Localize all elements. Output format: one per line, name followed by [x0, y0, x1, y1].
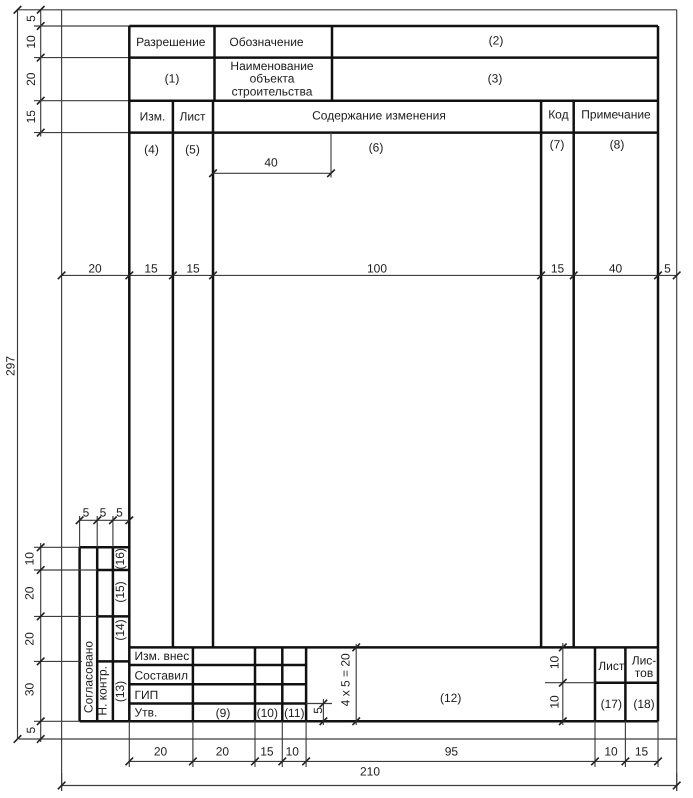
svg-text:(3): (3)	[488, 72, 503, 86]
svg-text:20: 20	[88, 261, 102, 275]
svg-text:строительства: строительства	[232, 85, 313, 99]
svg-text:10: 10	[23, 552, 37, 566]
svg-text:40: 40	[609, 261, 623, 275]
svg-text:15: 15	[144, 261, 158, 275]
svg-text:20: 20	[154, 745, 168, 759]
svg-text:(12): (12)	[440, 691, 461, 705]
svg-text:Изм.: Изм.	[140, 110, 166, 124]
svg-text:210: 210	[360, 765, 380, 779]
svg-text:(8): (8)	[610, 138, 625, 152]
svg-text:(5): (5)	[185, 143, 200, 157]
svg-text:20: 20	[23, 586, 37, 600]
svg-text:Содержание изменения: Содержание изменения	[312, 109, 446, 123]
svg-text:объекта: объекта	[250, 72, 295, 86]
svg-text:10: 10	[286, 745, 300, 759]
svg-text:30: 30	[23, 683, 37, 697]
svg-text:(1): (1)	[165, 72, 180, 86]
svg-text:(6): (6)	[369, 141, 384, 155]
svg-text:10: 10	[24, 35, 38, 49]
svg-text:(14): (14)	[113, 619, 127, 640]
svg-text:(18): (18)	[633, 697, 654, 711]
svg-text:тов: тов	[635, 666, 653, 680]
svg-text:Разрешение: Разрешение	[136, 35, 206, 49]
svg-text:Составил: Составил	[135, 669, 188, 683]
svg-text:15: 15	[24, 110, 38, 124]
svg-text:40: 40	[264, 156, 278, 170]
svg-text:5: 5	[83, 506, 90, 520]
svg-text:Лист: Лист	[179, 110, 206, 124]
svg-text:297: 297	[4, 356, 18, 376]
svg-text:15: 15	[186, 261, 200, 275]
svg-text:5: 5	[24, 15, 38, 22]
svg-text:5: 5	[116, 506, 123, 520]
svg-text:Примечание: Примечание	[581, 108, 651, 122]
svg-text:Утв.: Утв.	[135, 706, 158, 720]
svg-text:(9): (9)	[216, 706, 231, 720]
svg-text:20: 20	[216, 745, 230, 759]
svg-text:5: 5	[664, 261, 671, 275]
svg-text:(10): (10)	[257, 706, 278, 720]
svg-text:10: 10	[604, 745, 618, 759]
svg-text:20: 20	[24, 72, 38, 86]
svg-text:(7): (7)	[550, 138, 565, 152]
svg-text:Лист: Лист	[598, 659, 625, 673]
svg-text:(4): (4)	[144, 143, 159, 157]
svg-text:5: 5	[100, 506, 107, 520]
svg-text:ГИП: ГИП	[135, 688, 159, 702]
svg-text:Согласовано: Согласовано	[81, 641, 95, 713]
svg-text:15: 15	[260, 745, 274, 759]
svg-text:(15): (15)	[113, 581, 127, 602]
svg-text:15: 15	[635, 745, 649, 759]
svg-text:(16): (16)	[113, 548, 127, 569]
svg-text:Изм. внес: Изм. внес	[135, 649, 190, 663]
svg-text:10: 10	[548, 695, 562, 709]
svg-text:95: 95	[445, 745, 459, 759]
svg-text:(17): (17)	[601, 697, 622, 711]
svg-text:(11): (11)	[284, 706, 304, 720]
svg-text:10: 10	[548, 656, 562, 670]
svg-text:5: 5	[311, 707, 325, 714]
svg-text:5: 5	[24, 727, 38, 734]
svg-text:Обозначение: Обозначение	[229, 35, 304, 49]
svg-text:(13): (13)	[113, 681, 127, 702]
svg-text:4 х 5 = 20: 4 х 5 = 20	[338, 653, 352, 706]
svg-text:(2): (2)	[489, 34, 504, 48]
svg-text:Код: Код	[548, 108, 568, 122]
svg-text:20: 20	[23, 632, 37, 646]
svg-text:Н. контр.: Н. контр.	[95, 666, 109, 716]
svg-text:15: 15	[551, 261, 565, 275]
svg-text:100: 100	[367, 261, 387, 275]
